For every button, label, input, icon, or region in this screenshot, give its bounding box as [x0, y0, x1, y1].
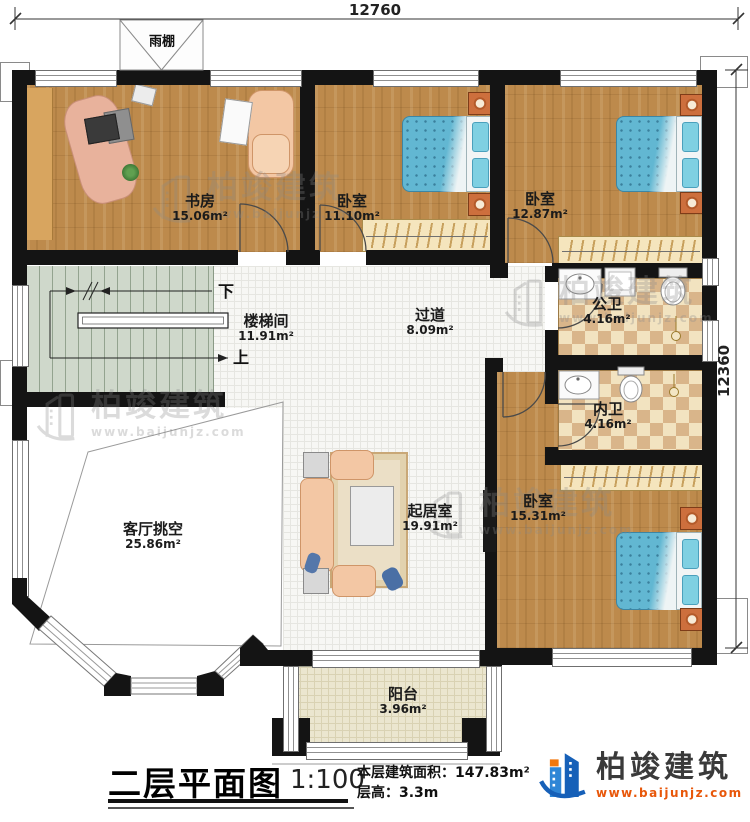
floor-height-line: 层高：3.3m — [357, 783, 530, 803]
stairs-down-label: 下 — [218, 278, 234, 302]
room-label-balcony: 阳台3.96m² — [379, 686, 426, 716]
stairs-up-label: 上 — [233, 344, 249, 368]
stairs-linework — [50, 282, 228, 362]
floor-area-line: 本层建筑面积：147.83m² — [357, 763, 530, 783]
room-label-public-bath: 公卫4.16m² — [583, 296, 630, 326]
room-label-bedroom1: 卧室11.10m² — [324, 193, 380, 223]
company-logo: 柏竣建筑 www.baijunjz.com — [538, 748, 743, 804]
linework-overlay — [0, 0, 750, 822]
plan-title: 二层平面图 — [108, 757, 283, 805]
dimension-top: 12760 — [330, 1, 420, 19]
floor-plan-page: 12760 12360 雨棚 书房15.06m² 卧室11.10m² 卧室12.… — [0, 0, 750, 822]
plan-stats: 本层建筑面积：147.83m² 层高：3.3m — [357, 763, 530, 804]
room-label-stairwell: 楼梯间11.91m² — [238, 313, 294, 343]
dimension-right: 12360 — [715, 331, 733, 411]
room-label-bedroom2: 卧室12.87m² — [512, 191, 568, 221]
logo-building-icon — [538, 748, 588, 804]
title-underline-thin — [108, 807, 354, 809]
plan-scale: 1:100 — [290, 765, 365, 795]
room-label-hallway: 过道8.09m² — [406, 307, 453, 337]
room-label-ensuite-bath: 内卫4.16m² — [584, 401, 631, 431]
bay-window — [12, 578, 268, 696]
room-label-living-void: 客厅挑空25.86m² — [123, 521, 183, 551]
room-label-living-room: 起居室19.91m² — [402, 503, 458, 533]
title-underline-thick — [108, 799, 348, 803]
room-label-study: 书房15.06m² — [172, 193, 228, 223]
room-label-bedroom3: 卧室15.31m² — [510, 493, 566, 523]
ensuite-bath-fixtures — [559, 367, 679, 402]
canopy-label: 雨棚 — [149, 31, 175, 50]
